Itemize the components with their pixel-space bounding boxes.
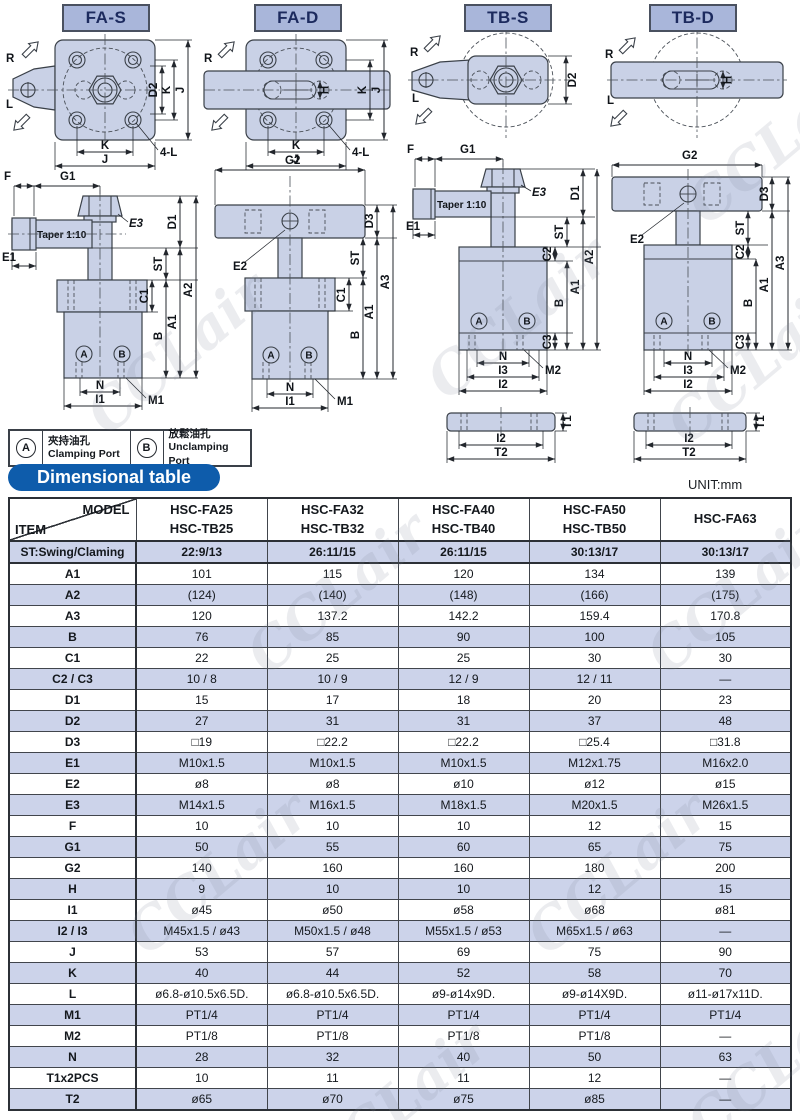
rotate-right-label: R <box>605 49 614 61</box>
table-row: D3□19□22.2□22.2□25.4□31.8 <box>9 732 791 753</box>
table-cell: 30:13/17 <box>529 541 660 563</box>
table-cell: 200 <box>660 858 791 879</box>
table-cell: 22 <box>136 648 267 669</box>
table-cell: 10 <box>398 879 529 900</box>
table-cell: 10 / 8 <box>136 669 267 690</box>
table-cell: 76 <box>136 627 267 648</box>
dim-label-t2: T2 <box>682 447 695 459</box>
column-header: HSC-FA63 <box>660 498 791 541</box>
table-cell: ø8 <box>136 774 267 795</box>
row-label: I2 / I3 <box>9 921 136 942</box>
svg-text:B: B <box>118 350 125 361</box>
table-cell: 58 <box>529 963 660 984</box>
table-row: D22731313748 <box>9 711 791 732</box>
fa-s-side-view-drawing: F G1 Taper 1:10 E3 E1 A B N I1 M1 <box>0 170 205 422</box>
table-cell: ø65 <box>136 1089 267 1111</box>
row-label: G1 <box>9 837 136 858</box>
dim-label-i2: I2 <box>683 379 693 391</box>
table-corner-cell: MODEL ITEM <box>9 498 136 541</box>
table-cell: PT1/8 <box>136 1026 267 1047</box>
table-cell: — <box>660 1068 791 1089</box>
table-cell: (148) <box>398 585 529 606</box>
table-cell: 31 <box>398 711 529 732</box>
tb-d-side-view-drawing: G2 E2 A B N I3 I2 M2 D3 ST C2 <box>600 145 800 477</box>
dim-label-st: ST <box>554 225 566 240</box>
row-label: D2 <box>9 711 136 732</box>
table-cell: □22.2 <box>398 732 529 753</box>
table-cell: 180 <box>529 858 660 879</box>
table-cell: 15 <box>660 879 791 900</box>
table-cell: 170.8 <box>660 606 791 627</box>
svg-text:A: A <box>660 317 667 328</box>
table-cell: 28 <box>136 1047 267 1068</box>
rotate-right-label: R <box>6 53 15 65</box>
dim-label-d1: D1 <box>570 185 582 200</box>
table-cell: (166) <box>529 585 660 606</box>
table-cell: — <box>660 669 791 690</box>
table-cell: M16x1.5 <box>267 795 398 816</box>
row-label: A1 <box>9 563 136 585</box>
table-cell: 15 <box>660 816 791 837</box>
table-cell: 142.2 <box>398 606 529 627</box>
table-cell: 90 <box>398 627 529 648</box>
table-cell: 27 <box>136 711 267 732</box>
dim-label-b: B <box>153 332 165 340</box>
column-header: HSC-FA25HSC-TB25 <box>136 498 267 541</box>
table-cell: (175) <box>660 585 791 606</box>
row-label: C2 / C3 <box>9 669 136 690</box>
table-cell: M45x1.5 / ø43 <box>136 921 267 942</box>
dim-label-st: ST <box>350 251 362 266</box>
table-header-row: MODEL ITEM HSC-FA25HSC-TB25HSC-FA32HSC-T… <box>9 498 791 541</box>
table-cell: ø10 <box>398 774 529 795</box>
table-row: B768590100105 <box>9 627 791 648</box>
table-cell: 57 <box>267 942 398 963</box>
table-cell: 37 <box>529 711 660 732</box>
table-cell: 25 <box>267 648 398 669</box>
dimension-lines-bottom: N I1 M1 <box>252 379 354 412</box>
table-cell: 10 <box>267 879 398 900</box>
table-cell: M12x1.75 <box>529 753 660 774</box>
table-cell: 10 <box>136 1068 267 1089</box>
table-cell: 105 <box>660 627 791 648</box>
rotate-left-arrow-icon <box>607 108 629 130</box>
dim-label-n: N <box>684 351 692 363</box>
dim-label-i2-disc: I2 <box>496 433 506 445</box>
dim-label-j: J <box>371 87 383 93</box>
table-cell: ø8 <box>267 774 398 795</box>
table-cell: 69 <box>398 942 529 963</box>
row-label: K <box>9 963 136 984</box>
dim-label-st: ST <box>735 221 747 236</box>
table-cell: — <box>660 921 791 942</box>
legend-a-en: Clamping Port <box>48 448 130 461</box>
table-cell: ø6.8-ø10.5x6.5D. <box>136 984 267 1005</box>
dimension-lines-bottom: N I1 M1 <box>64 378 165 410</box>
rotate-right-arrow-icon <box>617 34 639 56</box>
table-cell: 30:13/17 <box>660 541 791 563</box>
dim-label-n: N <box>499 351 507 363</box>
dimensional-table-title: Dimensional table <box>8 464 220 491</box>
table-row: M2PT1/8PT1/8PT1/8PT1/8— <box>9 1026 791 1047</box>
dimensional-table: MODEL ITEM HSC-FA25HSC-TB25HSC-FA32HSC-T… <box>8 497 792 1111</box>
table-cell: 70 <box>660 963 791 984</box>
table-cell: 25 <box>398 648 529 669</box>
row-label: I1 <box>9 900 136 921</box>
dim-label-i2: I2 <box>498 379 508 391</box>
dimension-lines-bottom: N I3 I2 M2 <box>644 350 746 395</box>
dim-label-g1: G1 <box>460 144 476 156</box>
table-cell: 55 <box>267 837 398 858</box>
row-label: M2 <box>9 1026 136 1047</box>
table-cell: ø15 <box>660 774 791 795</box>
table-cell: (124) <box>136 585 267 606</box>
table-cell: 12 <box>529 1068 660 1089</box>
rotate-right-arrow-icon <box>20 38 42 60</box>
dim-label-i1: I1 <box>285 396 295 408</box>
table-row: N2832405063 <box>9 1047 791 1068</box>
dim-label-a2: A2 <box>183 283 195 298</box>
table-row: Lø6.8-ø10.5x6.5D.ø6.8-ø10.5x6.5D.ø9-ø14x… <box>9 984 791 1005</box>
table-cell: 53 <box>136 942 267 963</box>
row-label: D1 <box>9 690 136 711</box>
table-cell: M16x2.0 <box>660 753 791 774</box>
table-row: C2 / C310 / 810 / 912 / 912 / 11— <box>9 669 791 690</box>
row-label: H <box>9 879 136 900</box>
row-label: E1 <box>9 753 136 774</box>
table-cell: 30 <box>529 648 660 669</box>
row-label: N <box>9 1047 136 1068</box>
corner-item-label: ITEM <box>15 522 46 537</box>
dim-label-t1: T1 <box>755 415 767 429</box>
table-cell: ø68 <box>529 900 660 921</box>
table-cell: 15 <box>136 690 267 711</box>
dim-label-k: K <box>161 85 173 94</box>
table-cell: 26:11/15 <box>267 541 398 563</box>
row-label: C1 <box>9 648 136 669</box>
table-cell: M20x1.5 <box>529 795 660 816</box>
table-cell: 134 <box>529 563 660 585</box>
table-cell: — <box>660 1026 791 1047</box>
table-row: T1x2PCS10111112— <box>9 1068 791 1089</box>
table-row: K4044525870 <box>9 963 791 984</box>
legend-b-zh: 放鬆油孔 <box>169 428 251 441</box>
dim-label-g2: G2 <box>285 155 300 167</box>
svg-text:A: A <box>475 317 482 328</box>
table-cell: 31 <box>267 711 398 732</box>
rotate-left-label: L <box>412 93 419 105</box>
dim-label-e2: E2 <box>630 234 644 246</box>
table-row: E1M10x1.5M10x1.5M10x1.5M12x1.75M16x2.0 <box>9 753 791 774</box>
rotate-left-arrow-icon <box>208 112 230 134</box>
table-row: A1101115120134139 <box>9 563 791 585</box>
dim-label-d3: D3 <box>364 214 376 229</box>
table-cell: 101 <box>136 563 267 585</box>
table-row: A3120137.2142.2159.4170.8 <box>9 606 791 627</box>
dim-label-a1: A1 <box>167 314 179 329</box>
dim-label-j: J <box>175 87 187 93</box>
dim-label-d3: D3 <box>759 187 771 202</box>
dim-label-e3: E3 <box>532 187 547 199</box>
table-cell: M50x1.5 / ø48 <box>267 921 398 942</box>
rotate-left-arrow-icon <box>412 106 434 128</box>
row-label: T2 <box>9 1089 136 1111</box>
table-cell: 85 <box>267 627 398 648</box>
dim-label-d2: D2 <box>567 73 579 88</box>
row-label: A2 <box>9 585 136 606</box>
table-cell: ø85 <box>529 1089 660 1111</box>
dim-label-e3: E3 <box>129 218 144 230</box>
svg-text:A: A <box>267 351 274 362</box>
rotate-right-label: R <box>204 53 213 65</box>
table-cell: M10x1.5 <box>267 753 398 774</box>
dim-label-b: B <box>554 299 566 307</box>
row-label: M1 <box>9 1005 136 1026</box>
dim-label-g1: G1 <box>60 171 76 183</box>
column-header: HSC-FA32HSC-TB32 <box>267 498 398 541</box>
table-cell: 44 <box>267 963 398 984</box>
table-cell: 12 / 11 <box>529 669 660 690</box>
table-row: E3M14x1.5M16x1.5M18x1.5M20x1.5M26x1.5 <box>9 795 791 816</box>
table-cell: 90 <box>660 942 791 963</box>
table-row: D11517182023 <box>9 690 791 711</box>
table-cell: 120 <box>136 606 267 627</box>
table-cell: M55x1.5 / ø53 <box>398 921 529 942</box>
table-cell: 22:9/13 <box>136 541 267 563</box>
dim-label-a1: A1 <box>759 277 771 292</box>
table-cell: □22.2 <box>267 732 398 753</box>
dim-label-c2: C2 <box>735 245 747 260</box>
rotate-right-arrow-icon <box>422 32 444 54</box>
row-label: D3 <box>9 732 136 753</box>
view-title-tb-d: TB-D <box>649 4 737 32</box>
dim-label-i3: I3 <box>498 365 508 377</box>
row-label: E3 <box>9 795 136 816</box>
dim-label-h: H <box>319 86 331 94</box>
catalog-page: FA-S FA-D TB-S TB-D R L D2 K J K J 4-L R… <box>0 0 800 1120</box>
table-row: G2140160160180200 <box>9 858 791 879</box>
dim-label-t1: T1 <box>562 415 574 429</box>
table-cell: 9 <box>136 879 267 900</box>
table-row: ST:Swing/Claming22:9/1326:11/1526:11/153… <box>9 541 791 563</box>
dim-label-c1: C1 <box>139 288 151 303</box>
table-cell: 12 / 9 <box>398 669 529 690</box>
dim-label-a2: A2 <box>584 250 596 265</box>
dim-label-b: B <box>743 299 755 307</box>
legend-b-symbol: B <box>131 431 164 465</box>
table-cell: 75 <box>660 837 791 858</box>
table-cell: — <box>660 1089 791 1111</box>
corner-model-label: MODEL <box>83 502 130 517</box>
svg-text:B: B <box>305 351 312 362</box>
taper-label: Taper 1:10 <box>437 200 487 211</box>
table-cell: □19 <box>136 732 267 753</box>
table-cell: 12 <box>529 816 660 837</box>
table-cell: 26:11/15 <box>398 541 529 563</box>
dim-label-c1: C1 <box>336 287 348 302</box>
table-cell: PT1/4 <box>267 1005 398 1026</box>
table-cell: ø6.8-ø10.5x6.5D. <box>267 984 398 1005</box>
table-row: I1ø45ø50ø58ø68ø81 <box>9 900 791 921</box>
dim-label-d1: D1 <box>167 214 179 229</box>
table-cell: 23 <box>660 690 791 711</box>
dim-label-k-bottom: K <box>101 140 110 152</box>
row-label: A3 <box>9 606 136 627</box>
row-label: G2 <box>9 858 136 879</box>
table-row: A2(124)(140)(148)(166)(175) <box>9 585 791 606</box>
table-cell: 40 <box>398 1047 529 1068</box>
dim-label-c3: C3 <box>542 335 554 350</box>
tb-s-side-view-drawing: F G1 Taper 1:10 E3 E1 A B N I3 I2 M2 <box>405 145 600 477</box>
table-cell: ø11-ø17x11D. <box>660 984 791 1005</box>
dim-label-n: N <box>96 380 104 392</box>
table-cell: 10 <box>398 816 529 837</box>
table-cell: 63 <box>660 1047 791 1068</box>
table-cell: 139 <box>660 563 791 585</box>
cylinder-body <box>64 312 142 378</box>
table-cell: 40 <box>136 963 267 984</box>
row-label: B <box>9 627 136 648</box>
table-cell: □31.8 <box>660 732 791 753</box>
legend-a-text: 夾持油孔 Clamping Port <box>43 431 131 465</box>
table-cell: M10x1.5 <box>398 753 529 774</box>
dim-label-i2-disc: I2 <box>684 433 694 445</box>
table-row: J5357697590 <box>9 942 791 963</box>
table-row: H910101215 <box>9 879 791 900</box>
svg-text:B: B <box>523 317 530 328</box>
dim-label-i3: I3 <box>683 365 693 377</box>
taper-label: Taper 1:10 <box>37 230 87 241</box>
table-cell: 50 <box>529 1047 660 1068</box>
table-cell: M18x1.5 <box>398 795 529 816</box>
row-label: T1x2PCS <box>9 1068 136 1089</box>
flange-block <box>57 280 147 312</box>
table-cell: 140 <box>136 858 267 879</box>
view-title-tb-s: TB-S <box>464 4 552 32</box>
rotate-right-arrow-icon <box>216 38 238 60</box>
table-cell: ø50 <box>267 900 398 921</box>
legend-a-symbol: A <box>10 431 43 465</box>
dim-label-e1: E1 <box>406 221 421 233</box>
table-cell: 100 <box>529 627 660 648</box>
dim-label-a3: A3 <box>775 256 787 271</box>
row-label: ST:Swing/Claming <box>9 541 136 563</box>
dim-label-g2: G2 <box>682 150 697 162</box>
dim-label-m2: M2 <box>545 365 561 377</box>
dim-label-st: ST <box>153 257 165 272</box>
column-header: HSC-FA50HSC-TB50 <box>529 498 660 541</box>
dimension-lines-bottom: N I3 I2 M2 <box>459 350 561 395</box>
table-cell: ø45 <box>136 900 267 921</box>
dim-label-c2: C2 <box>542 247 554 262</box>
table-cell: 48 <box>660 711 791 732</box>
table-cell: 20 <box>529 690 660 711</box>
table-cell: 10 <box>136 816 267 837</box>
dim-label-t2: T2 <box>494 447 507 459</box>
column-header: HSC-FA40HSC-TB40 <box>398 498 529 541</box>
table-row: M1PT1/4PT1/4PT1/4PT1/4PT1/4 <box>9 1005 791 1026</box>
table-cell: M10x1.5 <box>136 753 267 774</box>
table-cell: 75 <box>529 942 660 963</box>
table-row: E2ø8ø8ø10ø12ø15 <box>9 774 791 795</box>
unit-label: UNIT:mm <box>688 477 742 492</box>
table-cell: ø75 <box>398 1089 529 1111</box>
table-cell: 10 <box>267 816 398 837</box>
row-label: J <box>9 942 136 963</box>
dim-label-k: K <box>357 85 369 94</box>
dim-label-c3: C3 <box>735 335 747 350</box>
table-cell: 50 <box>136 837 267 858</box>
dim-label-b: B <box>350 331 362 339</box>
table-cell: 12 <box>529 879 660 900</box>
table-row: G15055606575 <box>9 837 791 858</box>
table-cell: 159.4 <box>529 606 660 627</box>
table-cell: 11 <box>267 1068 398 1089</box>
table-cell: PT1/4 <box>136 1005 267 1026</box>
table-cell: □25.4 <box>529 732 660 753</box>
dim-label-a1: A1 <box>364 304 376 319</box>
dim-label-f: F <box>407 144 414 156</box>
table-cell: 17 <box>267 690 398 711</box>
dim-label-e2: E2 <box>233 261 247 273</box>
view-title-fa-s: FA-S <box>62 4 150 32</box>
table-cell: 10 / 9 <box>267 669 398 690</box>
legend-a-zh: 夾持油孔 <box>48 435 130 448</box>
ports-legend: A 夾持油孔 Clamping Port B 放鬆油孔 Unclamping P… <box>8 429 252 467</box>
dim-label-i1: I1 <box>95 394 105 406</box>
fa-d-side-view-drawing: G2 E2 A B N I1 M1 D3 ST C1 B <box>205 150 410 422</box>
table-cell: PT1/4 <box>398 1005 529 1026</box>
dim-label-a3: A3 <box>380 275 392 290</box>
dim-label-m1: M1 <box>337 396 354 408</box>
table-cell: PT1/8 <box>398 1026 529 1047</box>
dim-label-m1: M1 <box>148 395 165 407</box>
table-cell: M65x1.5 / ø63 <box>529 921 660 942</box>
table-cell: PT1/4 <box>660 1005 791 1026</box>
dimension-e1: E1 <box>2 252 36 270</box>
svg-text:A: A <box>80 350 87 361</box>
dim-label-a1: A1 <box>570 279 582 294</box>
dim-label-j-bottom: J <box>102 154 108 166</box>
legend-b-text: 放鬆油孔 Unclamping Port <box>164 431 251 465</box>
rotate-right-label: R <box>410 47 419 59</box>
table-cell: PT1/4 <box>529 1005 660 1026</box>
table-cell: 160 <box>398 858 529 879</box>
table-cell: 11 <box>398 1068 529 1089</box>
table-cell: PT1/8 <box>267 1026 398 1047</box>
table-cell: M14x1.5 <box>136 795 267 816</box>
dim-label-h: H <box>722 76 734 84</box>
dimension-e1: E1 <box>406 221 435 239</box>
table-cell: ø58 <box>398 900 529 921</box>
table-cell: 52 <box>398 963 529 984</box>
svg-text:B: B <box>708 317 715 328</box>
dimension-g2: G2 <box>612 150 762 177</box>
table-cell: 60 <box>398 837 529 858</box>
table-cell: 137.2 <box>267 606 398 627</box>
table-cell: 18 <box>398 690 529 711</box>
rotate-left-label: L <box>6 99 13 111</box>
arm-collar <box>413 189 435 219</box>
dim-label-4l: 4-L <box>160 147 177 159</box>
table-cell: ø9-ø14x9D. <box>398 984 529 1005</box>
table-cell: M26x1.5 <box>660 795 791 816</box>
table-cell: 65 <box>529 837 660 858</box>
dim-label-e1: E1 <box>2 252 17 264</box>
table-cell: 115 <box>267 563 398 585</box>
row-label: F <box>9 816 136 837</box>
table-cell: (140) <box>267 585 398 606</box>
